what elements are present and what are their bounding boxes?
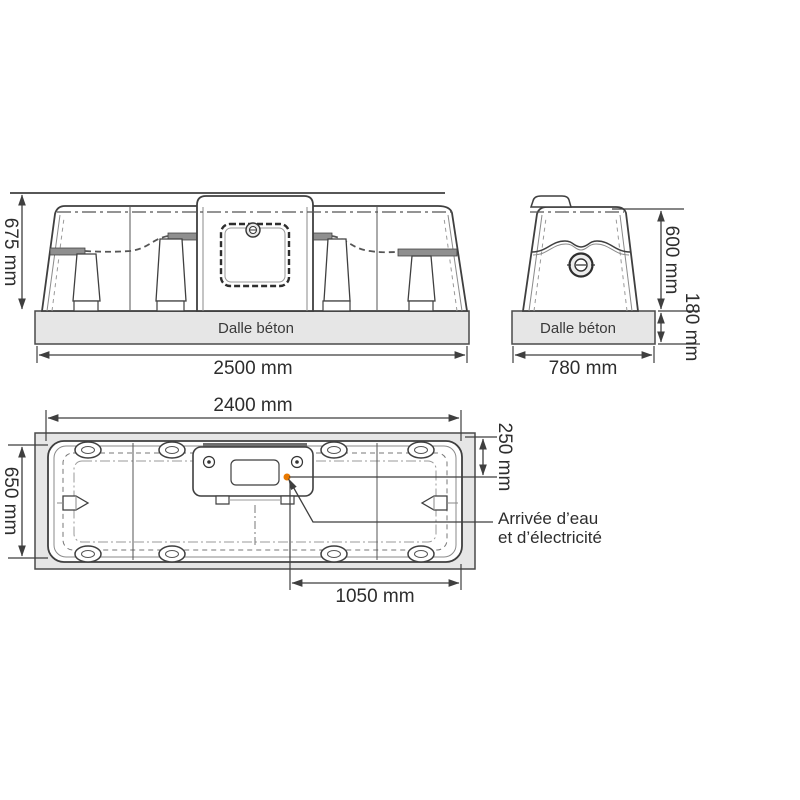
side-slab-label: Dalle béton [540,320,616,337]
support-foot [321,546,347,562]
plan-view [35,433,493,569]
front-width-dim-label: 2500 mm [213,358,292,379]
inlet-annotation-line1: Arrivée d’eau [498,509,598,528]
plan-inlet-position-dim-label: 1050 mm [335,586,414,607]
support-foot [321,442,347,458]
screw-center [295,460,299,464]
plan-length-dim-label: 2400 mm [213,395,292,416]
screw-center [207,460,211,464]
side-hood-bump [531,196,571,207]
technical-drawing-page: 675 mm 2500 mm Dalle béton 600 mm 180 mm… [0,0,800,800]
front-slab-label: Dalle béton [218,320,294,337]
support-foot [75,442,101,458]
screw-icon [246,223,260,237]
side-height-dim-label: 600 mm [661,226,682,295]
side-width-dim-label: 780 mm [549,358,618,379]
inlet-annotation-line2: et d’électricité [498,528,602,547]
support-foot [408,442,434,458]
support-foot [159,442,185,458]
support-foot [408,546,434,562]
plan-panel-handle [231,460,279,485]
technical-drawing: 675 mm 2500 mm Dalle béton 600 mm 180 mm… [0,0,800,800]
plan-depth-dim-label: 650 mm [0,467,21,536]
side-slab-height-dim-label: 180 mm [681,293,702,362]
front-height-dim-label: 675 mm [0,218,21,287]
support-foot [159,546,185,562]
support-foot [75,546,101,562]
plan-inlet-offset-dim-label: 250 mm [494,423,515,492]
